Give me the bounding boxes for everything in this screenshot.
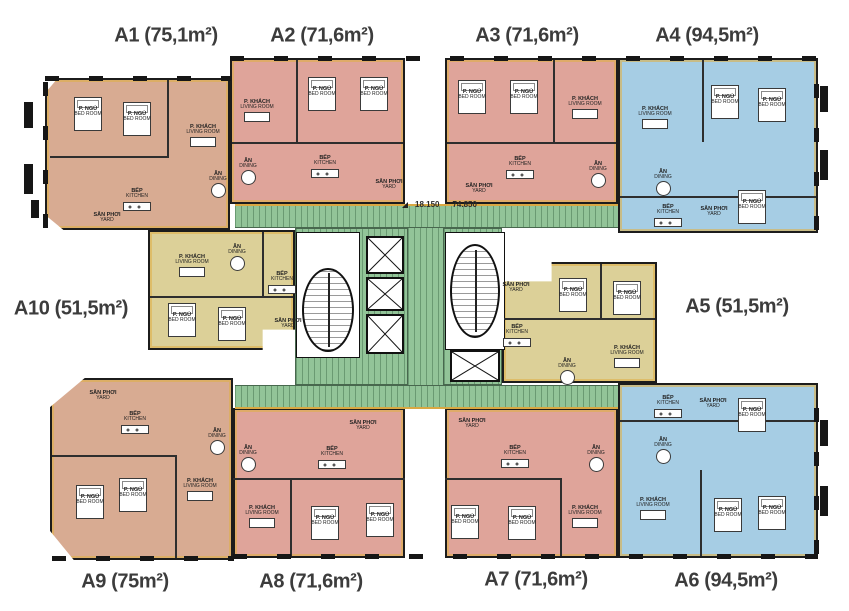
room-label-kitchen: BẾPKITCHEN: [124, 411, 146, 423]
kitchen-furniture: [268, 285, 296, 294]
dining-furniture: [656, 181, 671, 196]
elevator-shaft-1: [366, 236, 404, 274]
unit-label-a4: A4 (94,5m²): [655, 25, 758, 48]
living-furniture: [187, 491, 213, 501]
room-label-living: P. KHÁCHLIVING ROOM: [183, 478, 216, 490]
room-label-dining: ĂNDINING: [239, 158, 257, 170]
room-label-living: P. KHÁCHLIVING ROOM: [245, 505, 278, 517]
facade-columns-left-a1: [43, 82, 48, 228]
floor-plan: 18.150 74.850 A1 (75,1m²) A2 (71,6m²) A3…: [0, 0, 849, 611]
room-label-yard: SÂN PHƠIYARD: [375, 179, 402, 191]
living-furniture: [190, 137, 216, 147]
kitchen-furniture: [654, 218, 682, 227]
unit-a9: [50, 378, 233, 560]
room-label-living: P. KHÁCHLIVING ROOM: [636, 497, 669, 509]
room-label-yard: SÂN PHƠIYARD: [89, 390, 116, 402]
room-label-bedroom: P. NGỦBED ROOM: [714, 507, 741, 519]
living-furniture: [244, 112, 270, 122]
dimension-annotation: 18.150 74.850: [402, 200, 477, 209]
partition-wall: [296, 60, 298, 142]
unit-label-a3: A3 (71,6m²): [475, 25, 578, 48]
room-label-bedroom: P. NGỦBED ROOM: [308, 86, 335, 98]
partition-wall: [620, 196, 816, 198]
room-label-kitchen: BẾPKITCHEN: [506, 324, 528, 336]
partition-wall: [262, 232, 264, 296]
facade-columns-right-a6: [814, 386, 819, 554]
room-label-yard: SÂN PHƠIYARD: [458, 418, 485, 430]
room-label-yard: SÂN PHƠIYARD: [93, 212, 120, 224]
kitchen-furniture: [503, 338, 531, 347]
room-label-bedroom: P. NGỦBED ROOM: [218, 316, 245, 328]
unit-label-a7: A7 (71,6m²): [484, 569, 587, 592]
room-label-bedroom: P. NGỦBED ROOM: [758, 505, 785, 517]
partition-wall: [150, 296, 293, 298]
kitchen-furniture: [121, 425, 149, 434]
living-furniture: [572, 109, 598, 119]
partition-wall: [504, 318, 655, 320]
room-label-bedroom: P. NGỦBED ROOM: [711, 94, 738, 106]
room-label-kitchen: BẾPKITCHEN: [504, 445, 526, 457]
room-label-bedroom: P. NGỦBED ROOM: [738, 199, 765, 211]
dining-furniture: [211, 183, 226, 198]
living-furniture: [572, 518, 598, 528]
partition-wall: [175, 455, 177, 558]
facade-columns-bottom: [233, 554, 818, 559]
room-label-dining: ĂNDINING: [587, 445, 605, 457]
partition-wall: [232, 142, 403, 144]
balcony-wall-tick: [820, 86, 828, 112]
room-label-bedroom: P. NGỦBED ROOM: [451, 514, 478, 526]
balcony-wall-tick: [820, 420, 828, 446]
room-label-yard: SÂN PHƠIYARD: [274, 318, 301, 330]
room-label-bedroom: P. NGỦBED ROOM: [76, 494, 103, 506]
room-label-yard: SÂN PHƠIYARD: [700, 206, 727, 218]
unit-label-a10: A10 (51,5m²): [14, 298, 128, 321]
room-label-dining: ĂNDINING: [239, 445, 257, 457]
room-label-dining: ĂNDINING: [228, 244, 246, 256]
room-label-yard: SÂN PHƠIYARD: [349, 420, 376, 432]
room-label-dining: ĂNDINING: [209, 171, 227, 183]
living-furniture: [614, 358, 640, 368]
partition-wall: [600, 264, 602, 318]
unit-label-a1: A1 (75,1m²): [114, 25, 217, 48]
elevator-shaft-2: [366, 277, 404, 311]
staircase-left: [302, 268, 354, 352]
kitchen-furniture: [501, 459, 529, 468]
living-furniture: [179, 267, 205, 277]
dimension-value-right: 74.850: [452, 200, 476, 209]
room-label-bedroom: P. NGỦBED ROOM: [559, 287, 586, 299]
kitchen-furniture: [318, 460, 346, 469]
core-corridor-center: [408, 228, 443, 385]
room-label-dining: ĂNDINING: [654, 437, 672, 449]
facade-columns-right-a4: [814, 62, 819, 230]
dimension-value-left: 18.150: [415, 200, 439, 209]
dining-furniture: [230, 256, 245, 271]
facade-columns-top: [230, 56, 818, 61]
room-label-bedroom: P. NGỦBED ROOM: [119, 487, 146, 499]
unit-label-a8: A8 (71,6m²): [259, 571, 362, 594]
room-label-kitchen: BẾPKITCHEN: [271, 271, 293, 283]
partition-wall: [620, 420, 816, 422]
kitchen-furniture: [123, 202, 151, 211]
facade-columns-top-a1: [45, 76, 231, 81]
room-label-living: P. KHÁCHLIVING ROOM: [610, 345, 643, 357]
elevator-shaft-4: [450, 350, 500, 382]
kitchen-furniture: [506, 170, 534, 179]
room-label-kitchen: BẾPKITCHEN: [321, 446, 343, 458]
living-furniture: [642, 119, 668, 129]
room-label-bedroom: P. NGỦBED ROOM: [366, 512, 393, 524]
partition-wall: [702, 60, 704, 142]
partition-wall: [50, 156, 167, 158]
room-label-kitchen: BẾPKITCHEN: [657, 395, 679, 407]
partition-wall: [167, 80, 169, 158]
room-label-living: P. KHÁCHLIVING ROOM: [568, 96, 601, 108]
elevator-shaft-3: [366, 314, 404, 354]
room-label-bedroom: P. NGỦBED ROOM: [758, 97, 785, 109]
partition-wall: [290, 478, 292, 556]
living-furniture: [249, 518, 275, 528]
room-label-living: P. KHÁCHLIVING ROOM: [240, 99, 273, 111]
room-label-dining: ĂNDINING: [654, 169, 672, 181]
room-label-bedroom: P. NGỦBED ROOM: [738, 407, 765, 419]
room-label-kitchen: BẾPKITCHEN: [126, 188, 148, 200]
living-furniture: [640, 510, 666, 520]
unit-label-a6: A6 (94,5m²): [674, 570, 777, 593]
room-label-kitchen: BẾPKITCHEN: [509, 156, 531, 168]
balcony-wall-tick: [24, 102, 33, 128]
partition-wall: [553, 60, 555, 142]
kitchen-furniture: [311, 169, 339, 178]
room-label-yard: SÂN PHƠIYARD: [699, 398, 726, 410]
balcony-wall-tick: [820, 150, 828, 180]
dimension-arrow-icon: [402, 202, 408, 208]
room-label-bedroom: P. NGỦBED ROOM: [360, 86, 387, 98]
room-label-living: P. KHÁCHLIVING ROOM: [186, 124, 219, 136]
facade-columns-bottom-a9: [52, 556, 234, 561]
room-label-dining: ĂNDINING: [589, 161, 607, 173]
dining-furniture: [656, 449, 671, 464]
partition-wall: [447, 142, 616, 144]
balcony-wall-tick: [31, 200, 39, 218]
room-label-dining: ĂNDINING: [208, 428, 226, 440]
room-label-bedroom: P. NGỦBED ROOM: [613, 290, 640, 302]
dining-furniture: [210, 440, 225, 455]
unit-label-a9: A9 (75m²): [81, 571, 169, 594]
room-label-yard: SÂN PHƠIYARD: [465, 183, 492, 195]
room-label-living: P. KHÁCHLIVING ROOM: [568, 505, 601, 517]
room-label-bedroom: P. NGỦBED ROOM: [510, 89, 537, 101]
room-label-bedroom: P. NGỦBED ROOM: [508, 515, 535, 527]
partition-wall: [52, 455, 175, 457]
room-label-bedroom: P. NGỦBED ROOM: [123, 111, 150, 123]
partition-wall: [233, 478, 405, 480]
dining-furniture: [241, 170, 256, 185]
balcony-wall-tick: [24, 164, 33, 194]
room-label-living: P. KHÁCHLIVING ROOM: [638, 106, 671, 118]
balcony-wall-tick: [820, 486, 828, 516]
room-label-bedroom: P. NGỦBED ROOM: [311, 515, 338, 527]
room-label-bedroom: P. NGỦBED ROOM: [74, 106, 101, 118]
dining-furniture: [241, 457, 256, 472]
partition-wall: [700, 470, 702, 556]
room-label-yard: SÂN PHƠIYARD: [502, 282, 529, 294]
dining-furniture: [560, 370, 575, 385]
room-label-bedroom: P. NGỦBED ROOM: [168, 312, 195, 324]
room-label-bedroom: P. NGỦBED ROOM: [458, 89, 485, 101]
unit-label-a2: A2 (71,6m²): [270, 25, 373, 48]
room-label-living: P. KHÁCHLIVING ROOM: [175, 254, 208, 266]
room-label-kitchen: BẾPKITCHEN: [657, 204, 679, 216]
corridor-band-bottom: [235, 385, 618, 409]
dining-furniture: [591, 173, 606, 188]
partition-wall: [445, 478, 560, 480]
staircase-right: [450, 244, 500, 338]
room-label-dining: ĂNDINING: [558, 358, 576, 370]
kitchen-furniture: [654, 409, 682, 418]
room-label-kitchen: BẾPKITCHEN: [314, 155, 336, 167]
partition-wall: [560, 478, 562, 556]
unit-label-a5: A5 (51,5m²): [685, 296, 788, 319]
dining-furniture: [589, 457, 604, 472]
